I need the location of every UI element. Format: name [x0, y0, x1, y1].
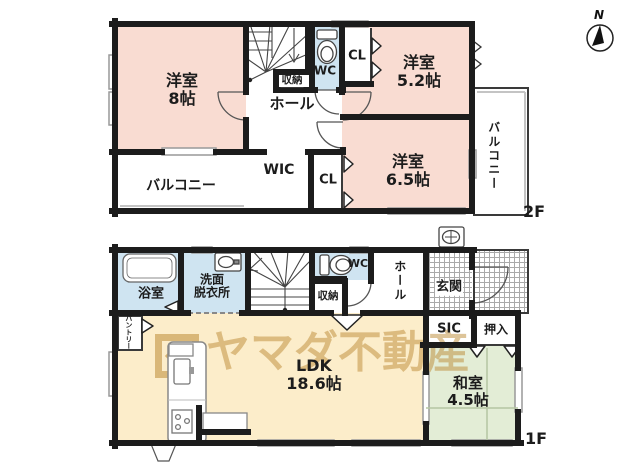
label-shuno-1f: 収納 [318, 291, 339, 303]
label-pantry-1f: パントリー [124, 315, 132, 350]
label-western8-2f: 洋室 8帖 [166, 72, 198, 108]
washbasin-icon-hall [439, 227, 464, 247]
label-washitsu-1f: 和室 4.5帖 [447, 375, 489, 409]
label-hall-1f: ホール [392, 260, 405, 302]
floorplan-canvas: ヤマダ不動産 [0, 0, 640, 469]
label-western52-2f: 洋室 5.2帖 [397, 54, 441, 90]
compass-icon [587, 25, 613, 51]
label-cl-a-2f: CL [348, 50, 366, 65]
compass-north-label: N [594, 8, 604, 22]
label-wc-1f: WC [348, 258, 368, 270]
label-bath-1f: 浴室 [138, 288, 164, 303]
balcony-right-2f [474, 88, 528, 215]
staircase-1f [248, 250, 312, 313]
label-sic-1f: SIC [437, 323, 461, 338]
label-cl-b-2f: CL [319, 174, 337, 189]
label-ldk-1f: LDK 18.6帖 [286, 357, 341, 393]
label-oshiire-1f: 押入 [484, 323, 508, 336]
backdoor-marker [151, 444, 176, 461]
label-wc-2f: WC [314, 64, 336, 77]
watermark-logo [155, 334, 199, 378]
label-wic-2f: WIC [264, 163, 295, 179]
porch-1f [474, 250, 528, 313]
watermark-logo-mark [165, 344, 189, 368]
label-hall-2f: ホール [269, 96, 314, 113]
label-floor-2f: 2F [523, 203, 545, 221]
label-floor-1f: 1F [525, 430, 547, 448]
label-balcony-right-2f: バルコニー [486, 121, 499, 191]
label-shuno-2f: 収納 [281, 75, 304, 87]
room-wc-2f [312, 24, 342, 90]
label-western65-2f: 洋室 6.5帖 [386, 153, 430, 189]
label-balcony-left-2f: バルコニー [146, 179, 216, 195]
label-senmen-1f: 洗面 脱衣所 [194, 274, 230, 301]
label-genkan-1f: 玄関 [435, 281, 463, 296]
room-wic-2f [246, 152, 311, 211]
room-bath-1f [118, 250, 181, 313]
